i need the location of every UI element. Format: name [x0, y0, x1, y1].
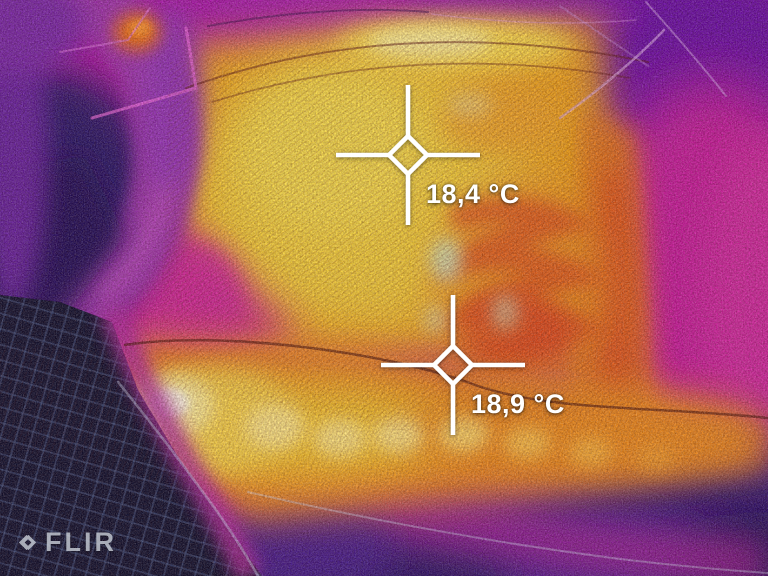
- flir-thermal-screenshot: 18,4 °C 18,9 °C FLIR: [0, 0, 768, 576]
- thermal-grain-light: [0, 0, 768, 576]
- thermal-image: [0, 0, 768, 576]
